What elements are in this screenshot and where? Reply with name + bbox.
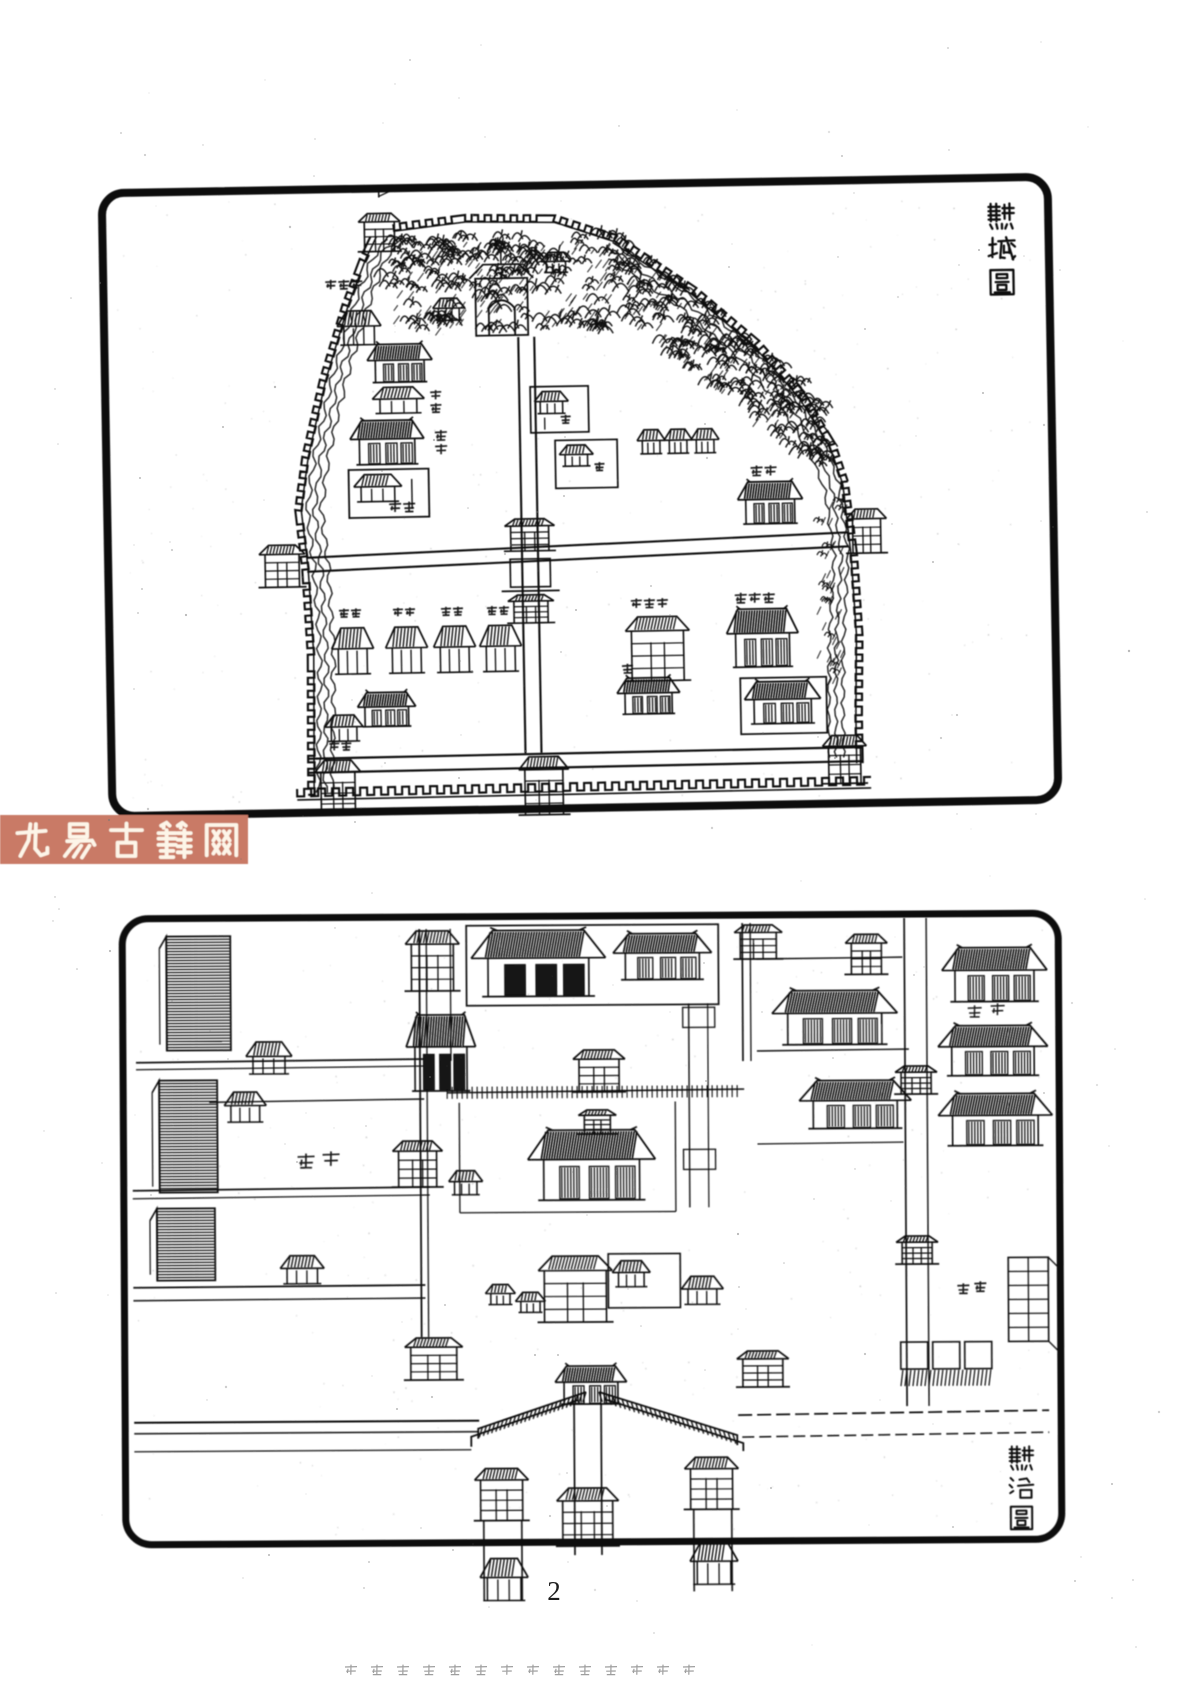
svg-text:2: 2 bbox=[547, 1576, 561, 1606]
